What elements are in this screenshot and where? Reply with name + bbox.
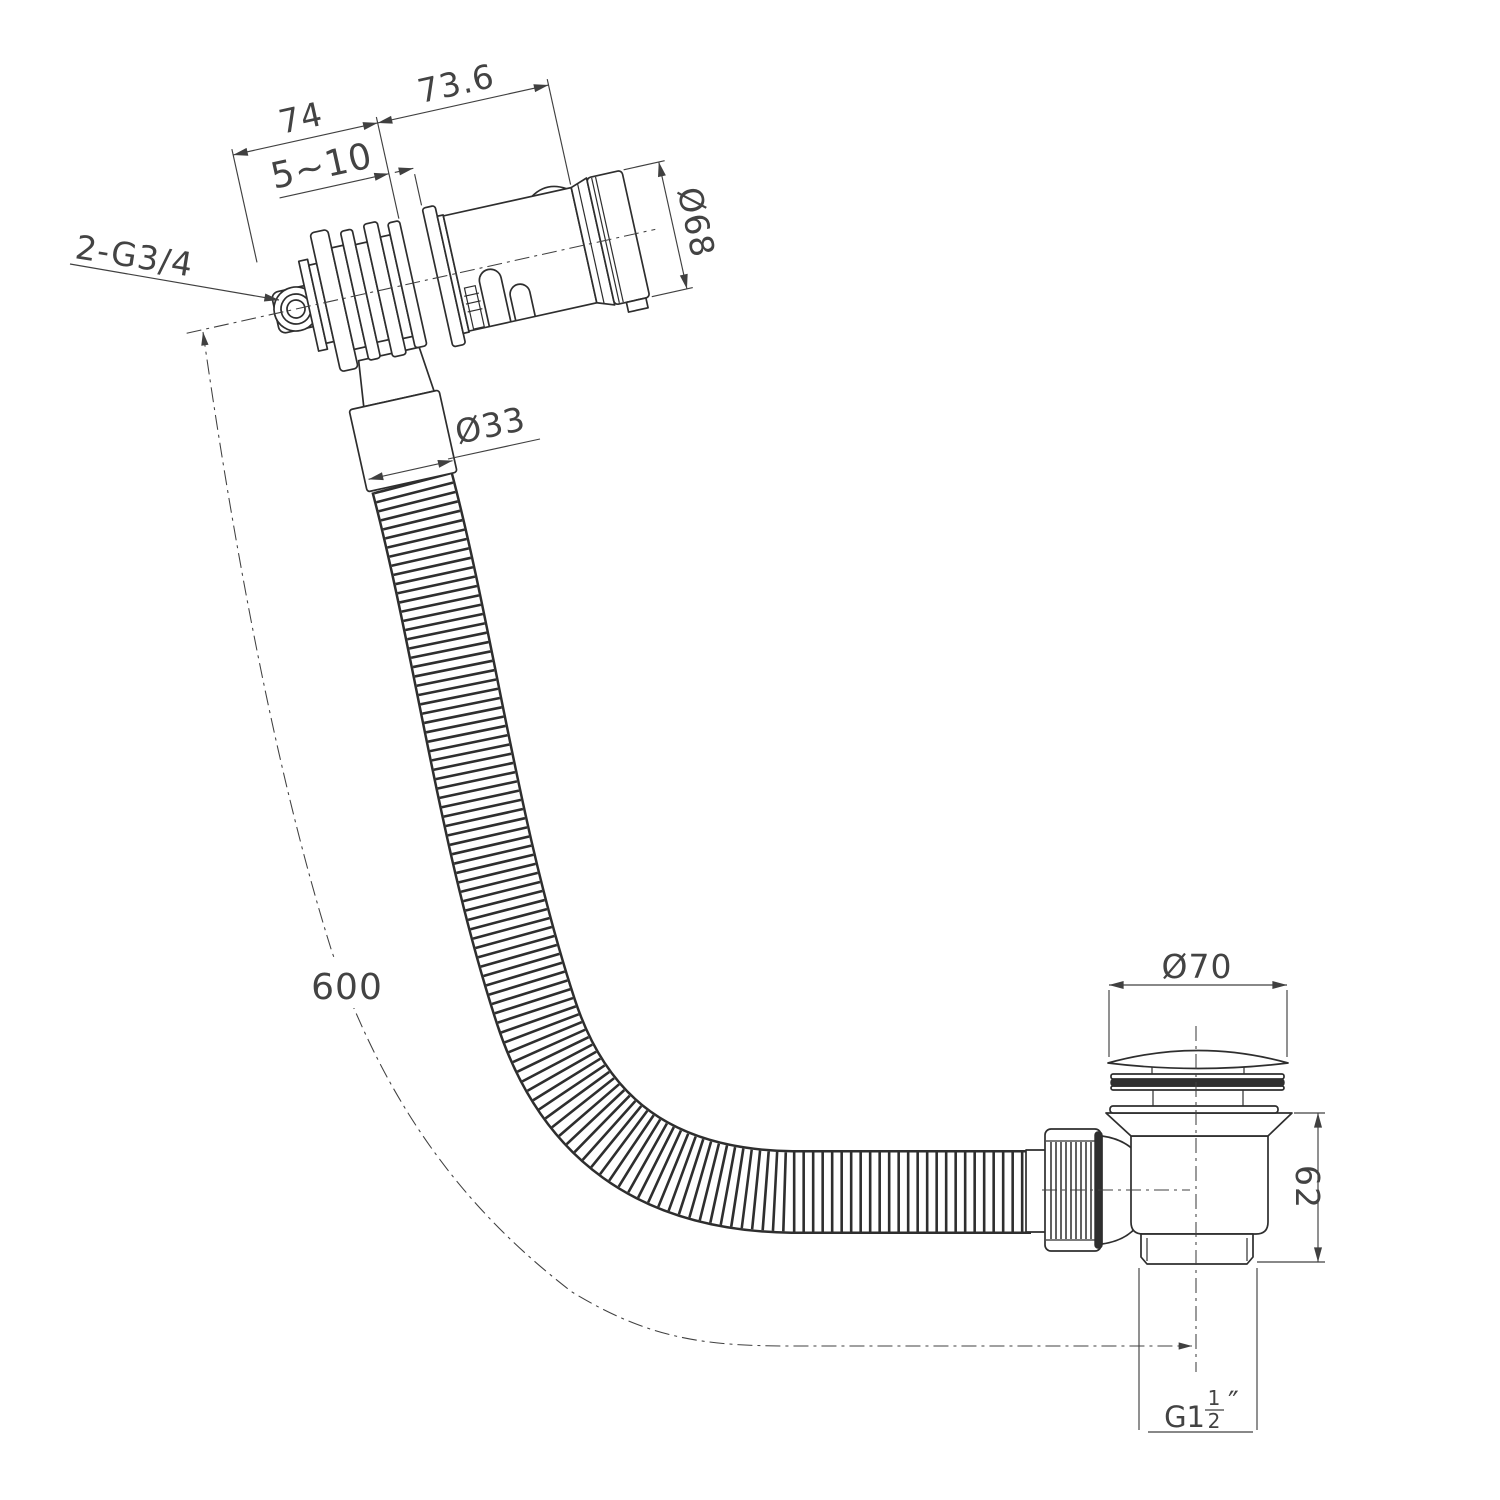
gasket-dark-band	[1111, 1079, 1284, 1086]
hose-tail-collar	[1026, 1150, 1046, 1232]
inlet-thread-callout: 2-G3/4	[70, 227, 279, 300]
dim-73-6-label: 73.6	[414, 56, 498, 111]
outlet-thread-prefix: G1	[1164, 1400, 1205, 1434]
overflow-filler-assembly: 74 73.6 5∼10 Ø68	[142, 16, 757, 523]
inlet-thread-label: 2-G3/4	[73, 227, 196, 284]
dim-74-label: 74	[275, 94, 326, 142]
outlet-thread-callout: G1 1 2 ″	[1139, 1268, 1257, 1434]
seat-plate	[1110, 1106, 1278, 1113]
outlet-thread-numerator: 1	[1208, 1386, 1221, 1410]
drawing-page: 600	[0, 0, 1500, 1500]
dim-d68-label: Ø68	[670, 183, 723, 261]
dim-hose-diameter: Ø33	[448, 399, 540, 459]
flange-plate-upper	[1111, 1074, 1284, 1079]
flexible-hose	[412, 482, 1031, 1192]
waste-body	[1131, 1136, 1268, 1234]
dim-62-label: 62	[1288, 1165, 1327, 1209]
clicker-dome-cap	[1108, 1051, 1288, 1069]
dim-waste-diameter: Ø70	[1109, 947, 1287, 1057]
technical-drawing: 600	[0, 0, 1500, 1500]
dim-d70-label: Ø70	[1162, 947, 1233, 986]
dim-wall-thickness: 5∼10	[267, 127, 421, 236]
outlet-thread-denominator: 2	[1208, 1409, 1221, 1433]
waste-top-flange	[1106, 1113, 1292, 1136]
outlet-thread	[1141, 1234, 1253, 1264]
outlet-thread-unit: ″	[1228, 1385, 1239, 1419]
waste-assembly: Ø70 62 G1 1 2 ″	[1026, 947, 1327, 1434]
dim-hose-length-label: 600	[311, 967, 383, 1008]
